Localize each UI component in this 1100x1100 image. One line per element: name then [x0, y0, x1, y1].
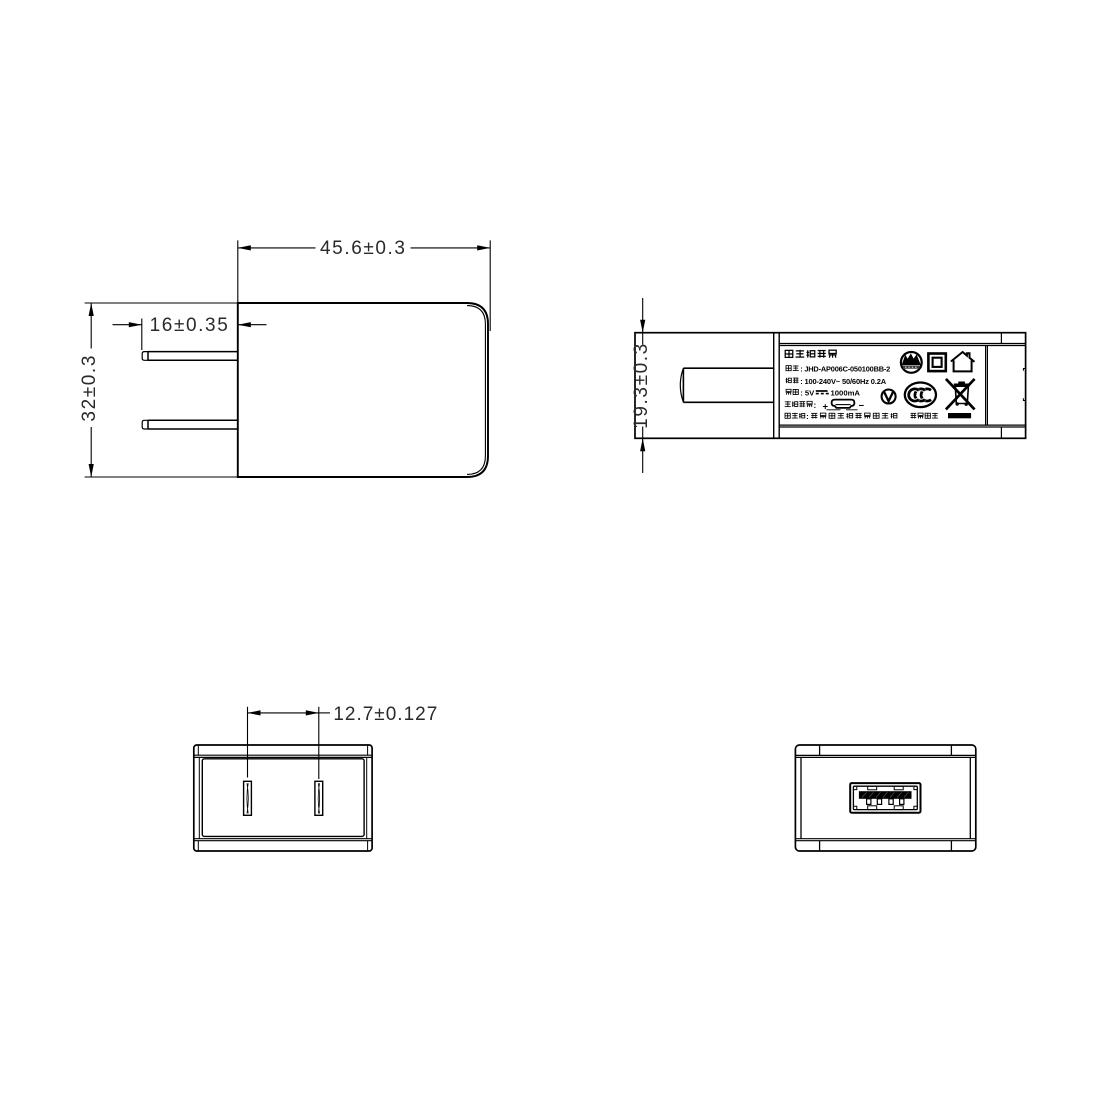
svg-text:: 100-240V~ 50/60Hz 0.2A: : 100-240V~ 50/60Hz 0.2A	[800, 377, 887, 386]
svg-text:45.6±0.3: 45.6±0.3	[320, 238, 407, 259]
svg-text:−: −	[859, 401, 865, 412]
svg-text:19.3±0.3: 19.3±0.3	[631, 342, 652, 429]
svg-text:32±0.3: 32±0.3	[79, 354, 100, 422]
svg-text:: JHD-AP006C-050100BB-2: : JHD-AP006C-050100BB-2	[800, 365, 890, 374]
svg-text:+: +	[823, 401, 829, 412]
svg-text::: :	[806, 412, 809, 421]
svg-text:: 5V: : 5V	[800, 388, 815, 397]
svg-text:16±0.35: 16±0.35	[150, 315, 230, 336]
svg-text:1000mA: 1000mA	[831, 388, 861, 397]
svg-text::: :	[814, 401, 817, 410]
svg-text:12.7±0.127: 12.7±0.127	[333, 704, 438, 725]
